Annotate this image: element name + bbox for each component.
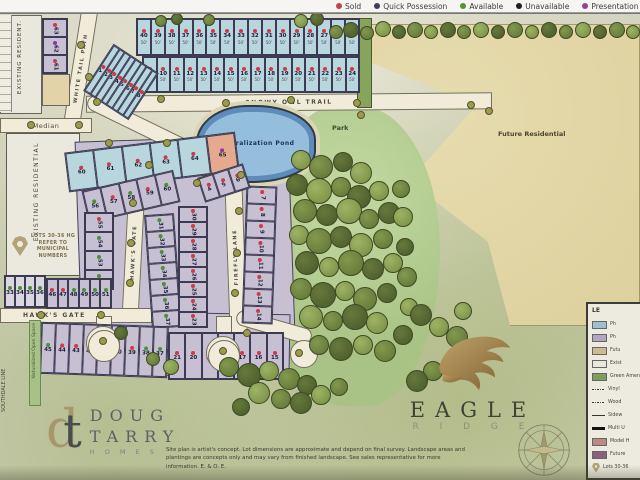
swatch-key-icon <box>592 347 607 355</box>
tree-icon <box>525 25 539 39</box>
lot-14: 1450' <box>211 57 225 92</box>
tree-icon <box>559 25 573 39</box>
lot-status-dot <box>258 224 262 228</box>
tree-icon <box>290 278 312 300</box>
lot-16: 1650' <box>238 57 252 92</box>
legend-dot-icon <box>336 3 342 9</box>
lot-30: 30 <box>179 207 207 222</box>
tree-icon <box>609 22 625 38</box>
dots-key-icon <box>592 402 605 404</box>
tree-icon <box>310 282 336 308</box>
swatch-key-icon <box>592 451 607 459</box>
legend-item: Quick Possession <box>374 2 447 11</box>
legend-item: Unavailable <box>516 2 569 11</box>
tree-icon <box>362 258 384 280</box>
tree-icon <box>350 162 372 184</box>
tree-icon <box>271 389 291 409</box>
lot-block-mid-east: 3029282726252423 <box>178 206 208 328</box>
tree-icon <box>316 204 338 226</box>
legend-row: Ph <box>592 331 640 344</box>
tree-icon <box>396 238 414 256</box>
southdale-line-label: SOUTHDALE LINE <box>1 332 7 412</box>
tree-icon <box>626 25 640 39</box>
lot-20: 2050' <box>292 57 306 92</box>
tree-icon <box>457 25 471 39</box>
lot-18: 1850' <box>265 57 279 92</box>
tree-icon <box>286 174 308 196</box>
pin-key-icon <box>592 463 600 473</box>
legend-dot-icon <box>582 3 588 9</box>
existing-residential-label: EXISTING RESIDENTIAL <box>33 142 40 241</box>
lot-50: 50 <box>90 279 101 308</box>
tree-icon <box>373 229 393 249</box>
lot-block-west-bottom: 464748495051 <box>46 278 112 309</box>
eagle-ridge-logo: EAGLE R I D G E <box>388 330 558 432</box>
lot-11: 1150' <box>170 57 184 92</box>
lot-60: 60 <box>65 150 98 191</box>
street-label-hawks-gate: HAWK'S GATE <box>23 312 86 319</box>
survey-marker-icon <box>27 121 35 129</box>
lot-7: 7 <box>247 187 277 205</box>
pin-note: LOTS 30-36 HG REFER TO MUNICIPAL NUMBERS <box>30 234 76 261</box>
survey-marker-icon <box>126 279 134 287</box>
lot-22: 2250' <box>319 57 333 92</box>
legend-row: Model H <box>592 435 640 448</box>
tree-icon <box>369 181 389 201</box>
tree-icon <box>232 398 250 416</box>
lot-54: 54 <box>85 232 113 251</box>
legend-row: Ph <box>592 318 640 331</box>
survey-marker-icon <box>233 249 241 257</box>
tree-icon <box>375 21 391 37</box>
tree-icon <box>353 335 373 355</box>
street-label-median: Median <box>33 122 60 130</box>
tree-icon <box>366 312 388 334</box>
survey-marker-icon <box>75 121 83 129</box>
tree-icon <box>454 302 472 320</box>
legend-dot-icon <box>516 3 522 9</box>
lot-block-far-left: 33343536 <box>4 275 46 308</box>
lot-25: 25 <box>179 282 207 297</box>
existing-resident-label-top: EXISTING RESIDENT. <box>17 20 23 94</box>
lot-30: 3050' <box>276 19 290 55</box>
legend-row: Exist <box>592 357 640 370</box>
compass-rose-icon <box>516 422 572 478</box>
lot-20: 20 <box>185 333 201 379</box>
survey-marker-icon <box>353 99 361 107</box>
lot-block-firefly-east: 7891011121314 <box>242 186 278 325</box>
lot-36: 36 <box>35 276 45 307</box>
tree-icon <box>343 22 359 38</box>
lot-55: 55 <box>85 213 113 232</box>
tarry-label: TARRY <box>90 427 181 446</box>
lot-31: 3150' <box>262 19 276 55</box>
lot-46: 46 <box>47 279 58 308</box>
tree-icon <box>146 352 160 366</box>
tree-icon <box>407 22 423 38</box>
legend-row: Vinyl <box>592 383 640 396</box>
tree-icon <box>541 22 557 38</box>
tree-icon <box>311 385 331 405</box>
lot-11: 11 <box>244 254 274 272</box>
tree-icon <box>163 359 179 375</box>
tree-icon <box>392 180 410 198</box>
map-legend-bar: SoldQuick PossessionAvailableUnavailable… <box>0 0 640 13</box>
lot-37: 3750' <box>179 19 193 55</box>
lot-51: 51 <box>100 279 111 308</box>
tree-icon <box>319 257 339 277</box>
legend-row: Future <box>592 448 640 461</box>
lot-19: 1950' <box>278 57 292 92</box>
legend-row: Lots 30-36 <box>592 461 640 474</box>
tree-icon <box>392 25 406 39</box>
tree-icon <box>338 250 364 276</box>
lot-status-dot <box>260 190 264 194</box>
survey-marker-icon <box>99 337 107 345</box>
lot-17: 1750' <box>251 57 265 92</box>
survey-marker-icon <box>485 107 493 115</box>
legend-title: LE <box>592 307 640 318</box>
lot-21: 2150' <box>305 57 319 92</box>
lot-13: 13 <box>243 288 273 306</box>
swatch-key-icon <box>592 321 607 329</box>
street-label-hawks-gate-v: HAWK'S GATE <box>129 225 138 280</box>
lot-26: 26 <box>179 267 207 282</box>
survey-marker-icon <box>467 101 475 109</box>
tree-icon <box>335 281 355 301</box>
tree-icon <box>593 25 607 39</box>
lot-49: 49 <box>79 279 90 308</box>
lot-53: 53 <box>85 251 113 270</box>
survey-marker-icon <box>243 329 251 337</box>
survey-marker-icon <box>97 311 105 319</box>
tree-icon <box>507 22 523 38</box>
lot-34: 34 <box>15 276 25 307</box>
swatch-key-icon <box>592 334 607 342</box>
street-hawks-gate: HAWK'S GATE <box>0 308 152 323</box>
tree-icon <box>473 22 489 38</box>
survey-marker-icon <box>163 139 171 147</box>
lot-block-northwest: 636261 <box>42 18 68 74</box>
doug-tarry-logo: dt DOUG TARRY H O M E S <box>46 406 180 456</box>
legend-row: Multi U <box>592 422 640 435</box>
map-legend-panel: LE PhPhFutuExistGreen AmenVinylWoodSidew… <box>586 302 640 480</box>
legend-row: Wood <box>592 396 640 409</box>
site-plan-map: EXISTING RESIDENT. EXISTING RESIDENTIAL … <box>0 13 640 480</box>
tree-icon <box>290 392 312 414</box>
park-label: Park <box>332 124 349 132</box>
lot-8: 8 <box>246 204 276 222</box>
lot-32: 3250' <box>248 19 262 55</box>
tree-icon <box>360 26 374 40</box>
survey-marker-icon <box>219 347 227 355</box>
survey-marker-icon <box>231 289 239 297</box>
lot-block-north-row-b: 950'1050'1150'1250'1350'1450'1550'1650'1… <box>142 56 360 93</box>
tree-icon <box>359 209 379 229</box>
tree-icon <box>171 13 183 25</box>
lot-63: 63 <box>43 19 67 37</box>
future-residential-label: Future Residential <box>498 130 566 138</box>
tree-icon <box>293 199 317 223</box>
lot-48: 48 <box>68 279 79 308</box>
site-plan-screenshot: SoldQuick PossessionAvailableUnavailable… <box>0 0 640 480</box>
lot-35: 35 <box>25 276 35 307</box>
eagle-label: EAGLE <box>388 398 558 422</box>
survey-marker-icon <box>157 95 165 103</box>
survey-marker-icon <box>295 349 303 357</box>
tree-icon <box>219 357 239 377</box>
lot-24: 24 <box>179 297 207 312</box>
survey-marker-icon <box>145 161 153 169</box>
tree-icon <box>155 15 167 27</box>
lot-27: 27 <box>179 252 207 267</box>
tree-icon <box>377 283 397 303</box>
lot-24: 2450' <box>346 57 360 92</box>
tree-icon <box>294 14 308 28</box>
swatch-key-icon <box>592 360 607 368</box>
naturalized-open-space-strip: Naturalized Open Space <box>29 320 41 406</box>
tree-icon <box>491 25 505 39</box>
legend-dot-icon <box>460 3 466 9</box>
survey-marker-icon <box>85 73 93 81</box>
lot-12: 1250' <box>184 57 198 92</box>
lot-14: 14 <box>243 305 273 323</box>
lot-40: 4050' <box>137 19 151 55</box>
doug-label: DOUG <box>90 406 181 425</box>
survey-marker-icon <box>105 139 113 147</box>
tree-icon <box>424 25 438 39</box>
tree-icon <box>393 207 413 227</box>
legend-row: Sidew <box>592 409 640 422</box>
survey-marker-icon <box>222 99 230 107</box>
eagle-icon <box>430 330 516 396</box>
naturalized-open-space-label: Naturalized Open Space <box>32 323 37 379</box>
survey-marker-icon <box>357 111 365 119</box>
lot-15: 1550' <box>224 57 238 92</box>
lot-64: 64 <box>178 136 211 177</box>
swatch-key-icon <box>592 438 607 446</box>
lot-9: 9 <box>246 221 276 239</box>
survey-marker-icon <box>235 207 243 215</box>
survey-marker-icon <box>237 171 245 179</box>
survey-marker-icon <box>287 96 295 104</box>
tree-icon <box>440 22 456 38</box>
legend-row: Futu <box>592 344 640 357</box>
tree-icon <box>397 267 417 287</box>
line-key-icon <box>592 415 605 416</box>
survey-marker-icon <box>77 41 85 49</box>
tree-icon <box>330 378 348 396</box>
tree-icon <box>114 326 128 340</box>
lot-13: 1350' <box>197 57 211 92</box>
lot-12: 12 <box>244 271 274 289</box>
legend-dot-icon <box>374 3 380 9</box>
lot-23: 2350' <box>332 57 346 92</box>
survey-marker-icon <box>37 311 45 319</box>
disclaimer-text: Site plan is artist's concept. Lot dimen… <box>166 446 474 471</box>
lot-23: 23 <box>179 312 207 327</box>
tree-icon <box>329 25 343 39</box>
lot-34: 3450' <box>220 19 234 55</box>
survey-marker-icon <box>193 179 201 187</box>
lineb-key-icon <box>592 427 605 430</box>
swatch-key-icon <box>592 373 607 381</box>
lot-47: 47 <box>58 279 69 308</box>
tree-icon <box>203 14 215 26</box>
lot-28: 28 <box>179 237 207 252</box>
legend-row: Green Amen <box>592 370 640 383</box>
legend-item: Available <box>460 2 503 11</box>
dots-key-icon <box>592 389 605 391</box>
survey-marker-icon <box>127 239 135 247</box>
tree-icon <box>248 382 270 404</box>
tree-icon <box>575 22 591 38</box>
lot-33: 33 <box>5 276 15 307</box>
survey-marker-icon <box>93 98 101 106</box>
tree-icon <box>309 335 329 355</box>
beige-lot <box>42 74 70 106</box>
doug-tarry-monogram: dt <box>46 410 82 452</box>
tree-icon <box>306 228 332 254</box>
lot-62: 62 <box>43 37 67 55</box>
lot-29: 29 <box>179 222 207 237</box>
tree-icon <box>329 337 353 361</box>
lot-status-dot <box>259 207 263 211</box>
tree-icon <box>259 361 279 381</box>
lot-61: 61 <box>43 55 67 73</box>
survey-marker-icon <box>129 199 137 207</box>
tree-icon <box>291 150 311 170</box>
tree-icon <box>295 251 319 275</box>
lot-33: 3350' <box>234 19 248 55</box>
tree-icon <box>342 304 368 330</box>
tree-icon <box>299 305 323 329</box>
lot-10: 1050' <box>157 57 171 92</box>
lot-block-north-row-a: 4050'3950'3850'3750'3650'3550'3450'3350'… <box>136 18 360 56</box>
tree-icon <box>309 155 333 179</box>
tree-icon <box>323 311 343 331</box>
legend-item: Sold <box>336 2 361 11</box>
lot-10: 10 <box>245 238 275 256</box>
legend-item: Presentation Centre <box>582 2 640 11</box>
edge-lot-strip <box>0 15 12 112</box>
